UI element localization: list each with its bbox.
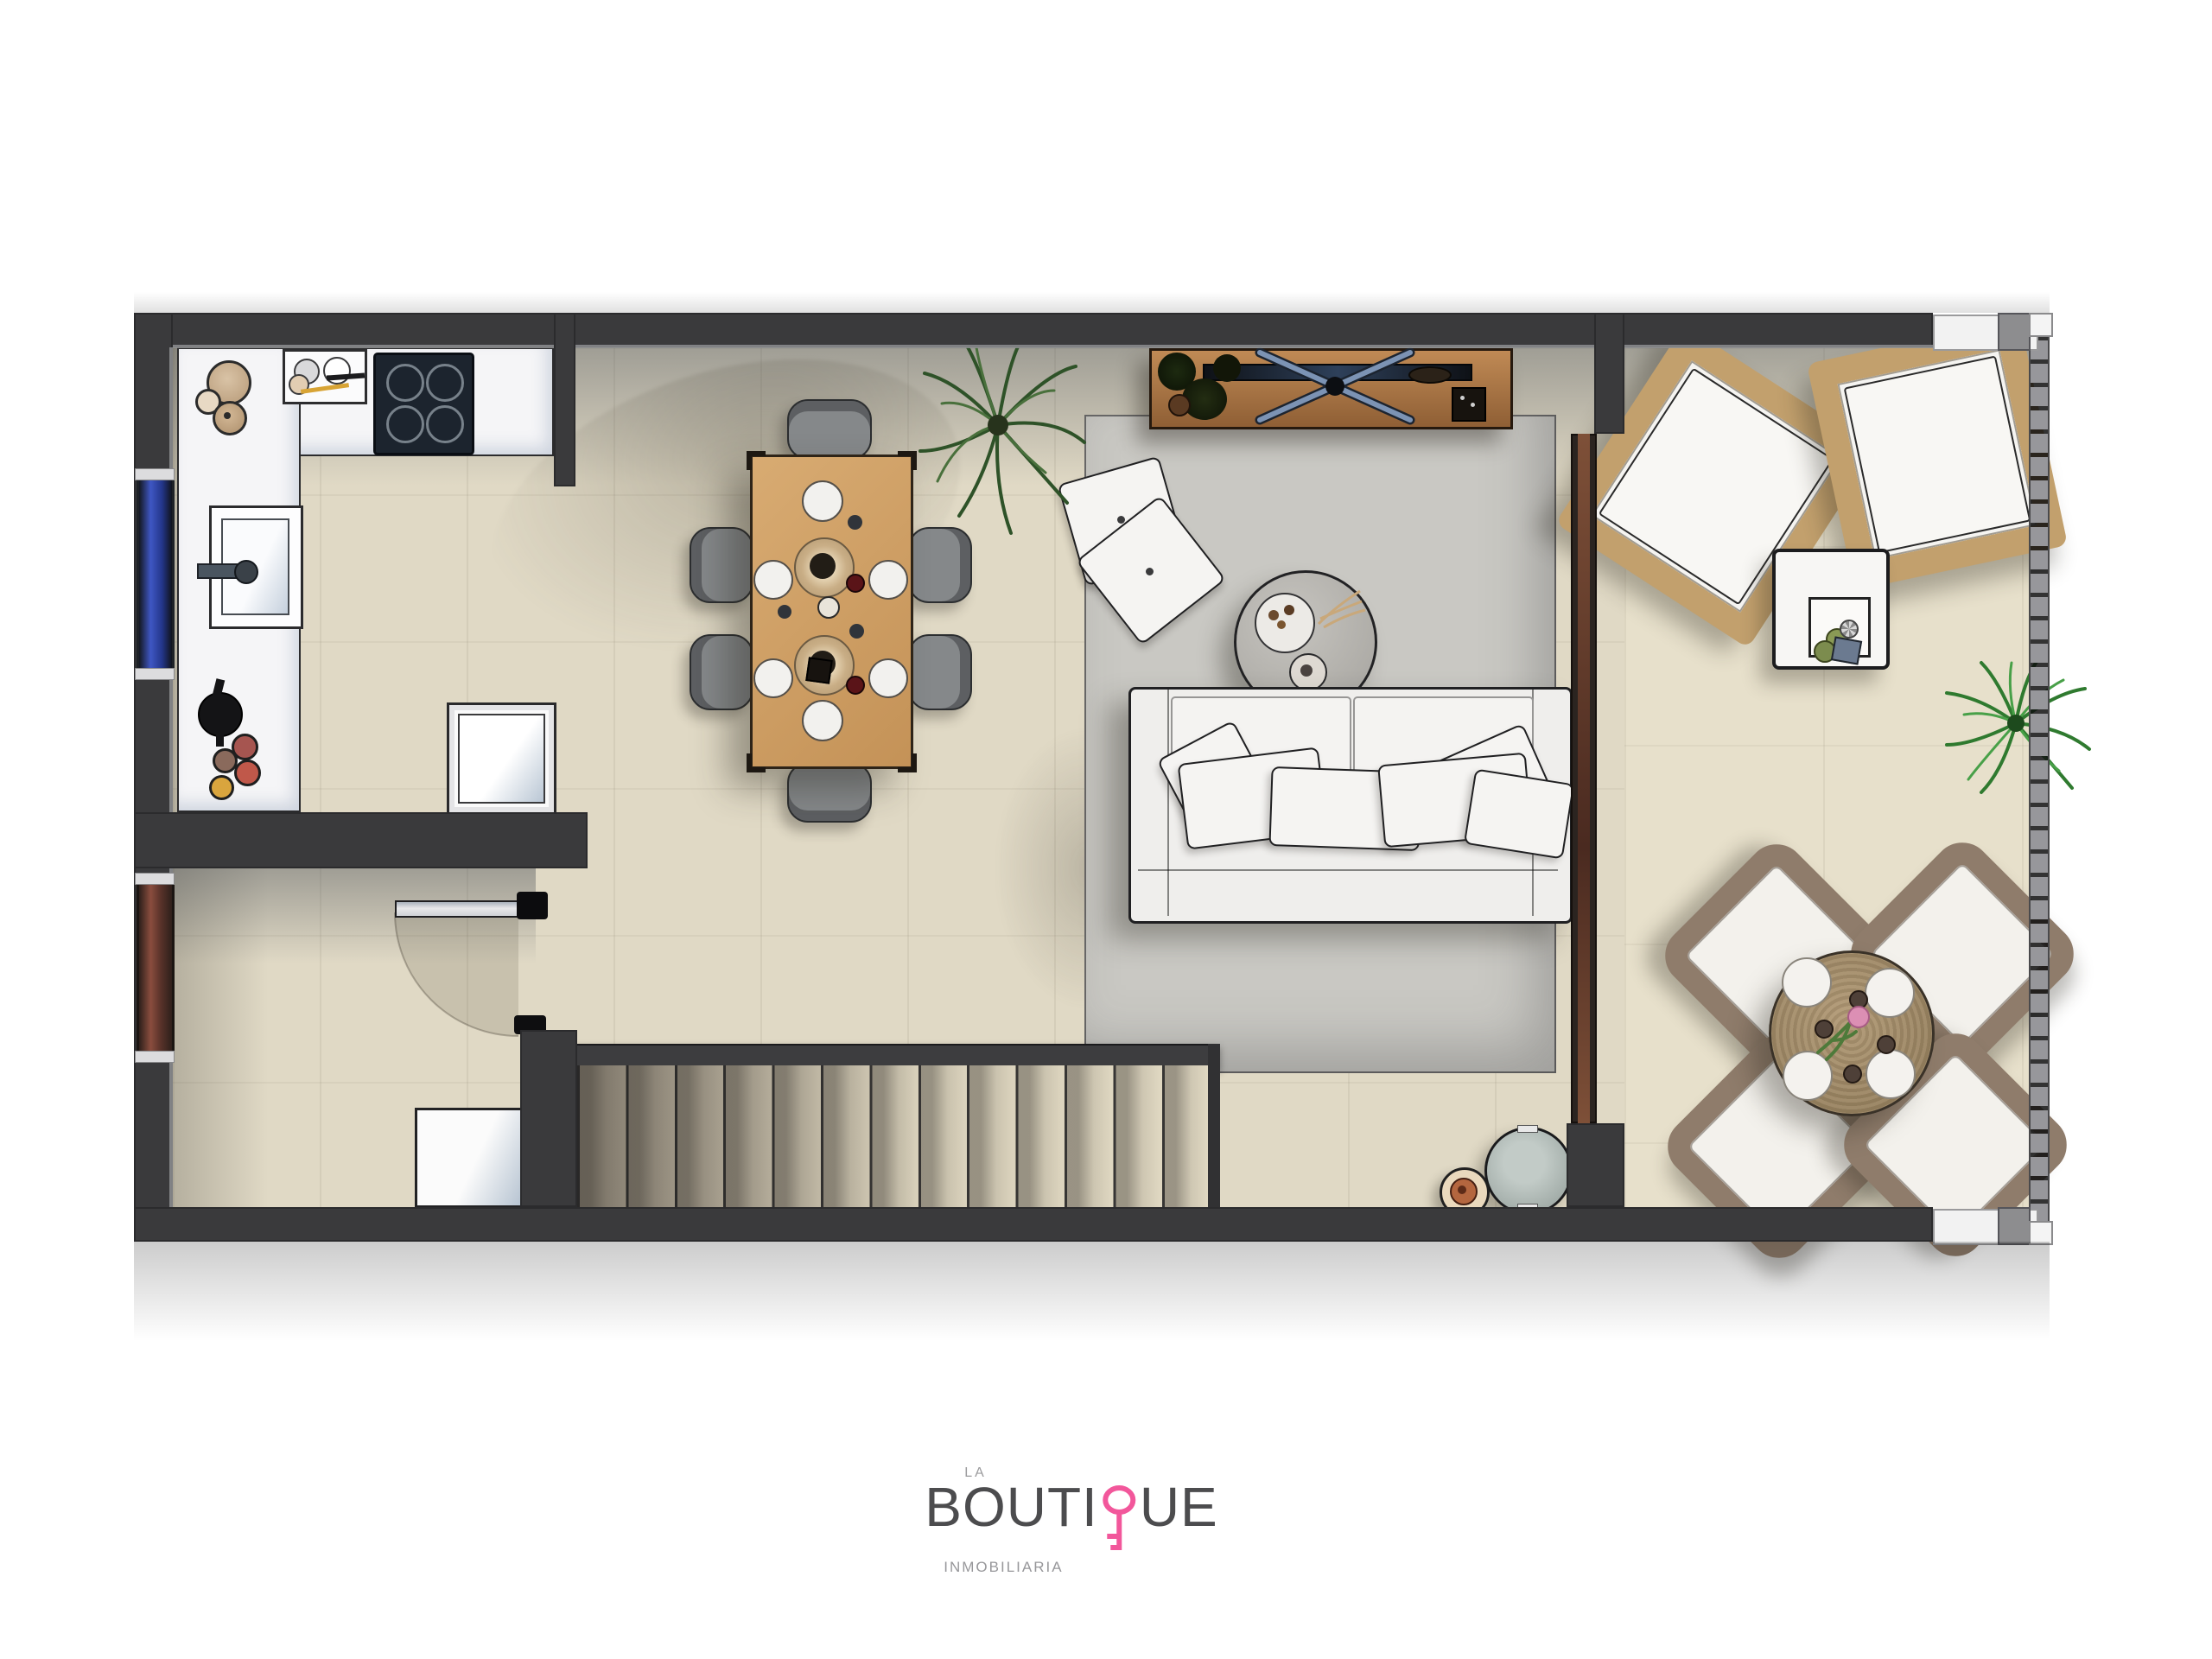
wine-glass	[846, 676, 865, 695]
flower	[1847, 1006, 1870, 1028]
brand-logo: LA BOUTI UE INMOBILIARIA	[925, 1479, 1217, 1576]
brand-wordmark: BOUTI UE	[925, 1479, 1217, 1555]
candle	[817, 596, 840, 619]
wall-terrace-stub-top	[1594, 313, 1624, 434]
candle-holder	[805, 657, 833, 684]
door-swing-arc	[389, 899, 529, 1047]
decor-vase-mouth	[1458, 1185, 1466, 1194]
wall-top	[134, 313, 1933, 347]
console-tray	[1408, 366, 1452, 384]
cushion-button	[1117, 516, 1125, 524]
wordmark-right: UE	[1140, 1479, 1218, 1535]
glass	[848, 515, 862, 530]
wall-terrace-stub-bottom	[1567, 1123, 1624, 1207]
sofa-backrest	[1138, 869, 1558, 914]
dining-chair	[690, 527, 753, 603]
floor-plan-render: LA BOUTI UE INMOBILIARIA	[0, 0, 2212, 1659]
pinecone-decor	[1268, 610, 1279, 620]
brand-subtitle: INMOBILIARIA	[944, 1559, 1217, 1576]
stair-edge-wall	[1208, 1044, 1220, 1207]
wine-glass	[846, 574, 865, 593]
glass	[849, 624, 864, 639]
decor-bowl-center	[1300, 664, 1313, 677]
dining-chair	[787, 762, 872, 823]
charger-center	[810, 553, 836, 579]
glass	[778, 605, 791, 619]
plate	[753, 658, 793, 698]
flower-stem	[1806, 1002, 1884, 1071]
wall-hall-stairs	[520, 1030, 577, 1207]
console-plant	[1213, 354, 1241, 382]
plate	[802, 480, 843, 522]
faucet-knob	[234, 560, 258, 584]
kettle-handle	[216, 731, 224, 747]
hall-cabinet	[415, 1108, 524, 1208]
table-corner	[747, 753, 766, 772]
plate	[868, 560, 908, 600]
dining-chair	[908, 634, 972, 710]
window-jamb	[135, 668, 175, 680]
door-hinge	[517, 892, 548, 919]
cushion-button	[1146, 568, 1154, 575]
console-box	[1452, 387, 1486, 422]
railing-post	[1998, 1207, 2031, 1245]
wall-kitchen-stub	[554, 313, 575, 486]
indoor-plant	[907, 321, 1089, 546]
terrace-railing	[2029, 313, 2050, 1242]
entry-door	[137, 881, 175, 1058]
wall-bottom	[134, 1207, 1933, 1242]
railing-post	[1998, 313, 2031, 351]
wordmark-left: BOUTI	[925, 1479, 1098, 1535]
dining-chair	[787, 399, 872, 460]
spice-jar	[209, 775, 234, 800]
wall-left	[134, 313, 173, 1242]
kitchen-window	[137, 477, 175, 675]
table-corner	[898, 753, 917, 772]
sofa-pillow	[1464, 768, 1574, 859]
door-jamb	[135, 1051, 175, 1063]
door-jamb	[135, 873, 175, 885]
staircase	[577, 1065, 1210, 1207]
bowl-handle	[1517, 1125, 1538, 1133]
pinecone-decor	[1284, 605, 1294, 615]
terrace-side-table	[1772, 549, 1890, 670]
dining-chair	[690, 634, 753, 710]
cooktop	[373, 353, 474, 455]
tv-stand-legs	[1244, 346, 1426, 429]
pampas-sprig	[1310, 581, 1370, 641]
kitchen-tray	[283, 349, 367, 404]
plate	[868, 658, 908, 698]
wall-inner-line	[173, 345, 1933, 348]
spice-jar	[234, 760, 261, 786]
kitchen-island-cabinet	[447, 702, 556, 815]
plan-top-shadow	[134, 292, 2050, 313]
sliding-door-frame	[1571, 434, 1597, 1123]
kitchen-bowl	[213, 401, 247, 435]
door-leaf	[395, 900, 522, 918]
plan-drop-shadow	[134, 1242, 2050, 1341]
pinecone-decor	[1277, 620, 1286, 629]
brand-la: LA	[964, 1465, 987, 1481]
window-jamb	[135, 468, 175, 480]
planter-bowl	[1484, 1127, 1573, 1215]
terrace-palm-plant	[1934, 641, 2098, 805]
table-corner	[747, 451, 766, 470]
railing-post	[2029, 313, 2053, 337]
key-icon	[1099, 1483, 1139, 1555]
bowl-dot	[224, 412, 231, 419]
wall-kitchen-hall	[134, 812, 588, 868]
outdoor-plate	[1782, 957, 1832, 1007]
plate	[802, 700, 843, 741]
plate	[753, 560, 793, 600]
console-pot	[1168, 394, 1191, 416]
